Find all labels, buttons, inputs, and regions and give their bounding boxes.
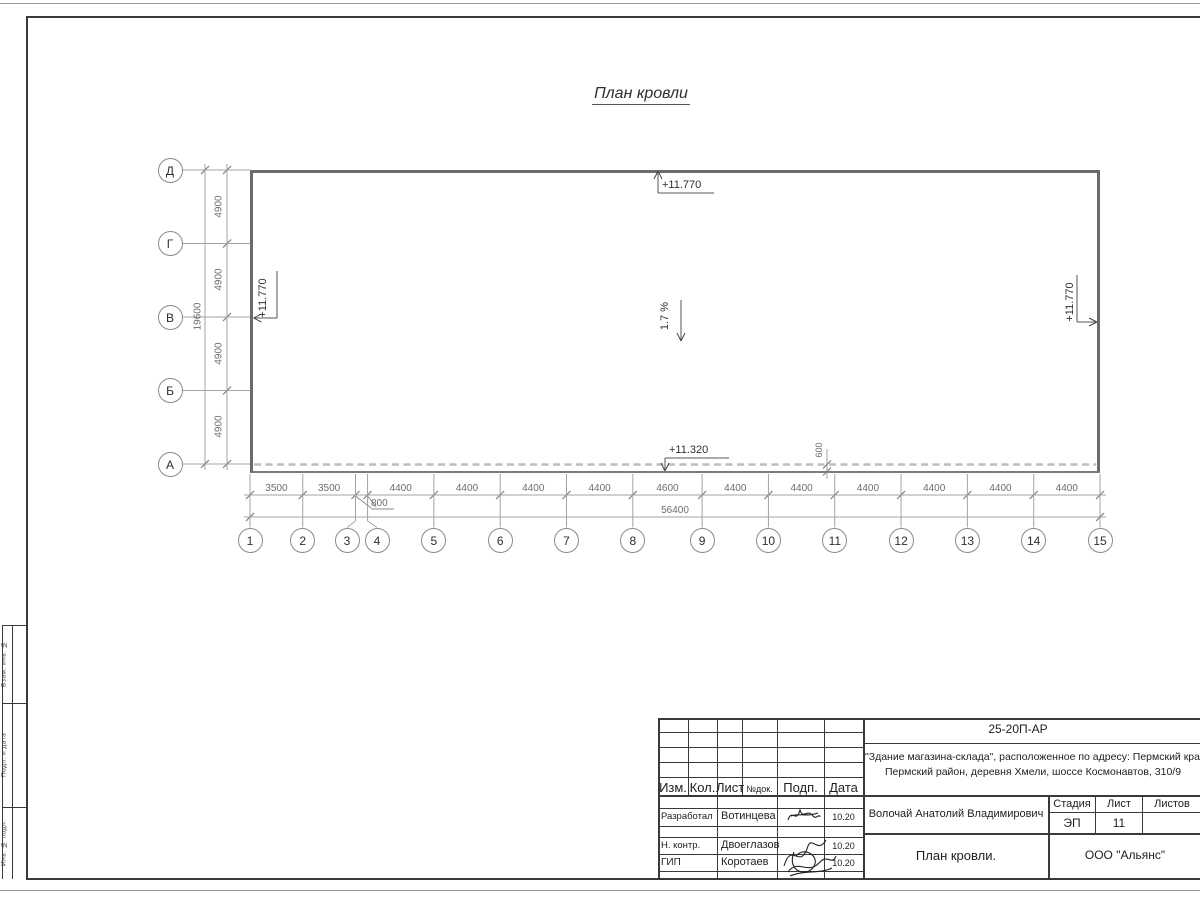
col-dim-label: 4400 — [857, 483, 879, 494]
tb-date: 10.20 — [824, 812, 863, 822]
col-dim-label: 4600 — [656, 483, 678, 494]
tb-chief-name: Волочай Анатолий Владимирович — [865, 808, 1047, 820]
row-dim-label: 4900 — [214, 186, 225, 226]
elevation-right: +11.770 — [1064, 272, 1076, 332]
elevation-left: +11.770 — [257, 268, 269, 328]
col-total-dim-label: 56400 — [661, 505, 689, 516]
row-axis-bubble: Д — [158, 158, 183, 183]
tb-header-izm: Изм. — [658, 780, 688, 795]
tb-role: ГИП — [661, 857, 681, 868]
col-dim-label: 4400 — [923, 483, 945, 494]
tb-header-kol: Кол. — [688, 780, 717, 795]
column-axis-bubble: 5 — [421, 528, 446, 553]
col-dim-label: 4400 — [522, 483, 544, 494]
row-axis-bubble: Г — [158, 231, 183, 256]
tb-date: 10.20 — [824, 858, 863, 868]
row-dim-label: 4900 — [214, 407, 225, 447]
col-dim-label: 4400 — [724, 483, 746, 494]
plan-annotations-layer: 1234567891011121314153500350080044004400… — [0, 0, 1200, 900]
column-axis-bubble: 9 — [690, 528, 715, 553]
col-dim-label: 3500 — [318, 483, 340, 494]
tb-name: Коротаев — [721, 856, 769, 868]
elevation-bottom: +11.320 — [669, 444, 708, 456]
col-dim-label: 4400 — [790, 483, 812, 494]
tb-stage-value: ЭП — [1049, 816, 1095, 830]
tb-sheet-value: 11 — [1096, 816, 1142, 830]
tb-header-data: Дата — [824, 780, 863, 795]
slope-label: 1.7 % — [659, 286, 671, 346]
column-axis-bubble: 12 — [889, 528, 914, 553]
elevation-top: +11.770 — [662, 179, 701, 191]
column-axis-bubble: 15 — [1088, 528, 1113, 553]
column-axis-bubble: 8 — [620, 528, 645, 553]
tb-date: 10.20 — [824, 841, 863, 851]
row-axis-bubble: Б — [158, 378, 183, 403]
parapet-dim-label: 600 — [814, 432, 824, 468]
col-dim-label: 3500 — [265, 483, 287, 494]
col-dim-label: 4400 — [1056, 483, 1078, 494]
tb-role: Разработал — [661, 811, 713, 822]
column-axis-bubble: 2 — [290, 528, 315, 553]
drawing-sheet: Взам. инв. № Подп. и дата Инв. № подл. П… — [0, 0, 1200, 900]
tb-name: Вотинцева — [721, 810, 776, 822]
tb-doc-number: 25-20П-АР — [918, 722, 1118, 736]
dim-callout-800: 800 — [371, 498, 388, 509]
col-dim-label: 4400 — [989, 483, 1011, 494]
row-axis-bubble: А — [158, 452, 183, 477]
tb-company: ООО "Альянс" — [1050, 848, 1200, 862]
tb-sheets-label: Листов — [1143, 798, 1200, 810]
column-axis-bubble: 11 — [822, 528, 847, 553]
tb-object-line1: "Здание магазина-склада", расположенное … — [865, 751, 1200, 763]
column-axis-bubble: 4 — [365, 528, 390, 553]
dimension-lines — [0, 0, 1200, 900]
col-dim-label: 4400 — [456, 483, 478, 494]
tb-role: Н. контр. — [661, 840, 700, 851]
row-dim-label: 4900 — [214, 260, 225, 300]
tb-object-line2: Пермский район, деревня Хмели, шоссе Кос… — [865, 766, 1200, 778]
tb-sheet-label: Лист — [1096, 798, 1142, 810]
tb-header-list: Лист — [716, 780, 743, 795]
col-dim-label: 4400 — [390, 483, 412, 494]
row-dim-label: 4900 — [214, 333, 225, 373]
row-total-dim-label: 19600 — [193, 295, 204, 339]
tb-header-podp: Подп. — [777, 780, 824, 795]
column-axis-bubble: 14 — [1021, 528, 1046, 553]
col-dim-label: 4400 — [588, 483, 610, 494]
tb-header-ndok: №док. — [742, 784, 777, 794]
column-axis-bubble: 10 — [756, 528, 781, 553]
column-axis-bubble: 7 — [554, 528, 579, 553]
column-axis-bubble: 1 — [238, 528, 263, 553]
column-axis-bubble: 13 — [955, 528, 980, 553]
tb-sheet-title: План кровли. — [865, 848, 1047, 863]
tb-stage-label: Стадия — [1049, 798, 1095, 810]
column-axis-bubble: 3 — [335, 528, 360, 553]
tb-name: Двоеглазов — [721, 839, 779, 851]
row-axis-bubble: В — [158, 305, 183, 330]
column-axis-bubble: 6 — [488, 528, 513, 553]
